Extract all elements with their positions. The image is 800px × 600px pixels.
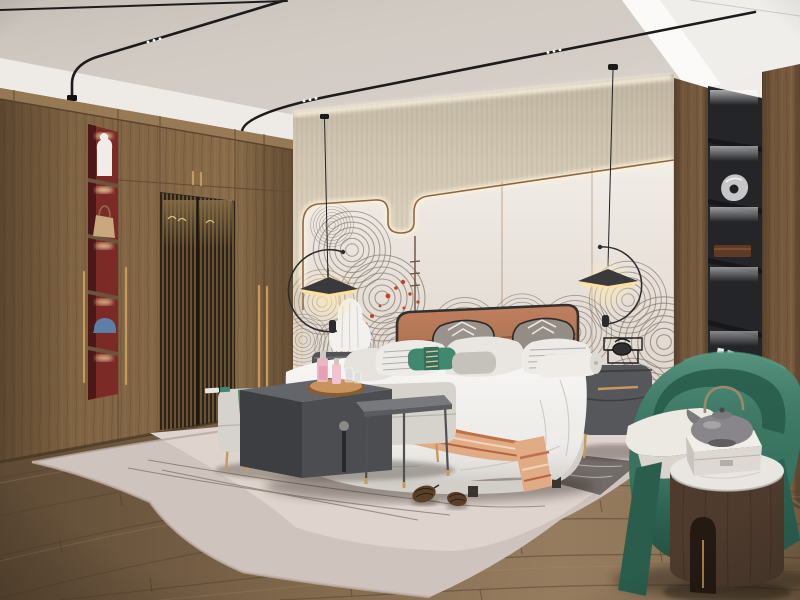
vignette-overlay: [0, 0, 800, 600]
scene-canvas: [0, 0, 800, 600]
bedroom-render: [0, 0, 800, 600]
